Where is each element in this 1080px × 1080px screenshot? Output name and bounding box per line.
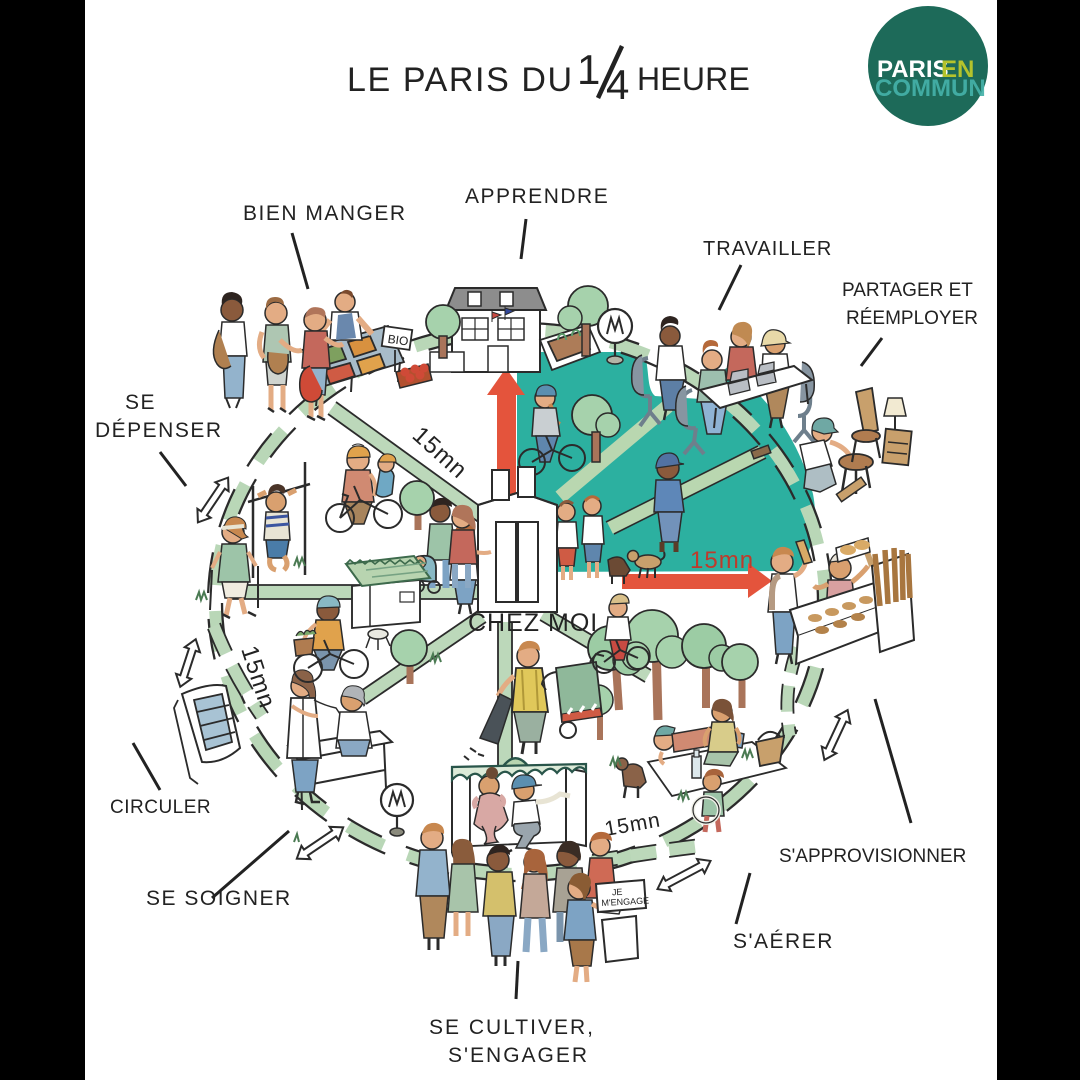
svg-text:CHEZ MOI: CHEZ MOI [468,609,598,637]
svg-text:15mn: 15mn [690,547,754,574]
svg-text:HEURE: HEURE [637,61,750,97]
svg-text:COMMUN: COMMUN [875,75,986,102]
svg-text:S'APPROVISIONNER: S'APPROVISIONNER [779,846,966,867]
svg-text:PARTAGER ET: PARTAGER ET [842,280,973,301]
svg-text:BIEN MANGER: BIEN MANGER [243,202,407,225]
svg-text:BIO: BIO [387,332,409,349]
svg-text:APPRENDRE: APPRENDRE [465,185,609,208]
svg-text:S'AÉRER: S'AÉRER [733,930,834,953]
svg-text:DÉPENSER: DÉPENSER [95,419,223,442]
svg-text:TRAVAILLER: TRAVAILLER [703,238,832,260]
svg-text:CIRCULER: CIRCULER [110,797,211,818]
svg-text:1: 1 [577,46,600,93]
svg-text:SE: SE [125,391,156,414]
svg-text:S'ENGAGER: S'ENGAGER [448,1044,589,1067]
svg-text:4: 4 [606,61,629,108]
svg-text:LE PARIS DU: LE PARIS DU [347,61,574,99]
svg-text:SE CULTIVER,: SE CULTIVER, [429,1016,595,1039]
svg-text:RÉEMPLOYER: RÉEMPLOYER [846,308,978,329]
svg-text:JE: JE [612,887,623,898]
